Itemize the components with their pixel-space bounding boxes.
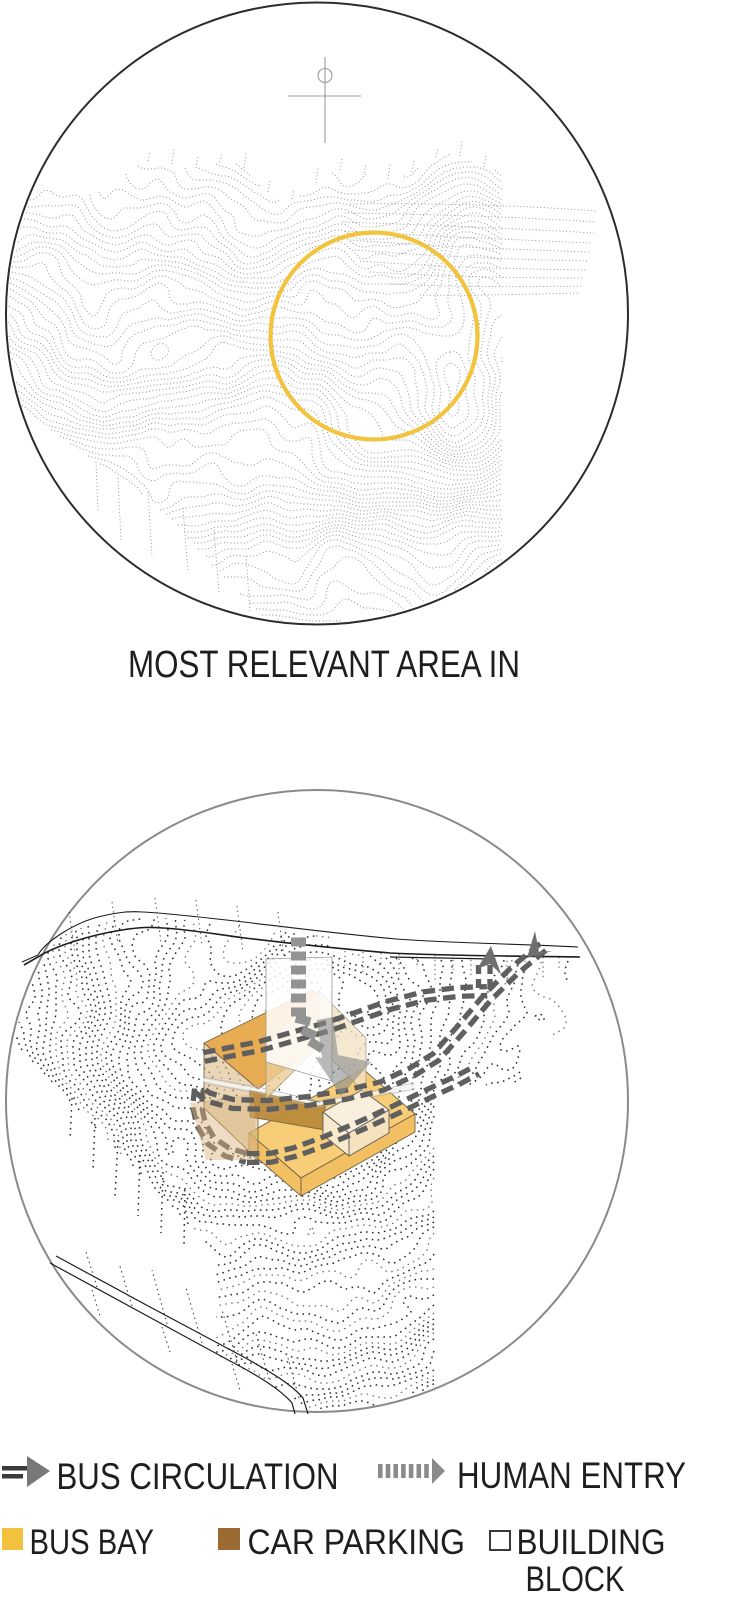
svg-text:BLOCK: BLOCK <box>526 1560 625 1599</box>
svg-text:MOST RELEVANT AREA IN: MOST RELEVANT AREA IN <box>128 644 520 686</box>
svg-text:HUMAN ENTRY: HUMAN ENTRY <box>457 1455 686 1496</box>
svg-text:CAR PARKING: CAR PARKING <box>248 1523 466 1562</box>
svg-text:BUS BAY: BUS BAY <box>30 1523 155 1562</box>
svg-text:BUS CIRCULATION: BUS CIRCULATION <box>57 1456 339 1497</box>
svg-text:BUILDING: BUILDING <box>517 1523 666 1562</box>
